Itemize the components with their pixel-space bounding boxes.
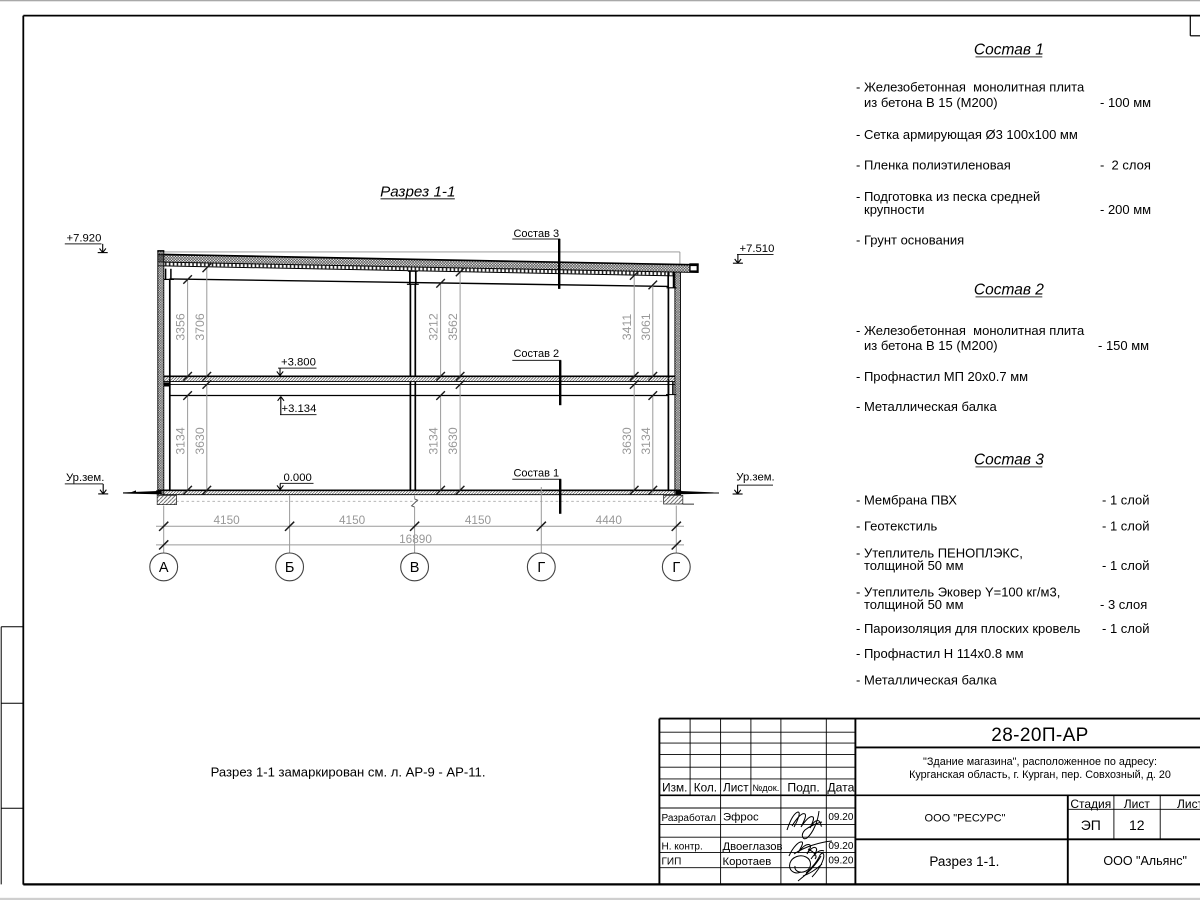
svg-text:28-20П-АР: 28-20П-АР xyxy=(991,725,1089,746)
svg-text:4150: 4150 xyxy=(339,513,366,527)
svg-text:Ур.зем.: Ур.зем. xyxy=(736,472,774,484)
svg-text:3630: 3630 xyxy=(193,427,207,455)
svg-text:12: 12 xyxy=(1129,817,1145,833)
svg-text:В: В xyxy=(410,560,420,576)
svg-text:- Металлическая балка: - Металлическая балка xyxy=(856,399,997,414)
svg-text:Состав 2: Состав 2 xyxy=(513,348,559,360)
svg-text:- Профнастил Н 114х0.8 мм: - Профнастил Н 114х0.8 мм xyxy=(856,646,1024,661)
svg-text:А: А xyxy=(159,560,169,576)
svg-text:Состав 1: Состав 1 xyxy=(513,468,559,480)
svg-text:Г: Г xyxy=(672,560,680,576)
svg-text:- Грунт основания: - Грунт основания xyxy=(856,232,964,247)
svg-text:- 1 слой: - 1 слой xyxy=(1102,519,1150,534)
svg-text:крупности: крупности xyxy=(864,202,924,217)
svg-text:Лист: Лист xyxy=(723,780,749,794)
svg-text:Состав 3: Состав 3 xyxy=(513,228,559,240)
svg-text:Подп.: Подп. xyxy=(787,780,819,794)
svg-text:Курганская область, г. Курган,: Курганская область, г. Курган, пер. Совх… xyxy=(909,769,1171,781)
svg-text:3630: 3630 xyxy=(446,427,460,455)
svg-text:+7.510: +7.510 xyxy=(740,243,775,255)
svg-text:- Мембрана ПВХ: - Мембрана ПВХ xyxy=(856,493,957,508)
svg-text:Кол.: Кол. xyxy=(694,780,717,794)
svg-text:Разрез 1-1: Разрез 1-1 xyxy=(380,183,455,200)
svg-text:Дата: Дата xyxy=(827,780,854,794)
svg-text:- Профнастил МП 20х0.7 мм: - Профнастил МП 20х0.7 мм xyxy=(856,369,1028,384)
svg-text:Ур.зем.: Ур.зем. xyxy=(66,472,104,484)
svg-text:ООО "РЕСУРС": ООО "РЕСУРС" xyxy=(925,813,1006,825)
svg-text:Состав 2: Состав 2 xyxy=(974,282,1044,299)
svg-text:Листов: Листов xyxy=(1177,797,1200,811)
svg-text:толщиной 50 мм: толщиной 50 мм xyxy=(864,597,964,612)
svg-text:- 1 слой: - 1 слой xyxy=(1102,493,1150,508)
svg-text:- 3 слоя: - 3 слоя xyxy=(1100,597,1147,612)
svg-text:Стадия: Стадия xyxy=(1070,797,1111,811)
svg-text:- 150 мм: - 150 мм xyxy=(1098,338,1149,353)
svg-text:ООО "Альянс": ООО "Альянс" xyxy=(1103,854,1187,868)
svg-text:3134: 3134 xyxy=(427,427,441,455)
svg-text:Разрез 1-1.: Разрез 1-1. xyxy=(929,854,999,869)
svg-text:№док.: №док. xyxy=(752,783,779,793)
svg-text:3134: 3134 xyxy=(174,427,188,455)
svg-text:3134: 3134 xyxy=(639,427,653,455)
svg-text:ЭП: ЭП xyxy=(1081,817,1101,833)
svg-text:3212: 3212 xyxy=(427,313,441,341)
svg-text:4150: 4150 xyxy=(213,513,240,527)
svg-text:толщиной 50 мм: толщиной 50 мм xyxy=(864,558,964,573)
svg-text:3630: 3630 xyxy=(620,427,634,455)
svg-text:- Пленка полиэтиленовая: - Пленка полиэтиленовая xyxy=(856,158,1011,173)
svg-text:Изм.: Изм. xyxy=(662,780,687,794)
svg-text:- Железобетонная монолитная п: - Железобетонная монолитная плита xyxy=(856,323,1085,338)
svg-text:+7.920: +7.920 xyxy=(67,232,102,244)
svg-text:3706: 3706 xyxy=(193,313,207,341)
svg-text:- Пароизоляция для плоских кро: - Пароизоляция для плоских кровель xyxy=(856,621,1081,636)
svg-text:+3.800: +3.800 xyxy=(281,357,316,369)
svg-text:Разрез 1-1 замаркирован см. л.: Разрез 1-1 замаркирован см. л. АР-9 - АР… xyxy=(211,764,486,779)
svg-text:Н. контр.: Н. контр. xyxy=(662,842,703,853)
svg-text:09.20: 09.20 xyxy=(828,841,853,852)
svg-text:- Металлическая балка: - Металлическая балка xyxy=(856,673,997,688)
svg-text:16890: 16890 xyxy=(399,532,432,546)
svg-text:- Геотекстиль: - Геотекстиль xyxy=(856,519,937,534)
svg-text:3061: 3061 xyxy=(639,313,653,341)
svg-text:- 2 слоя: - 2 слоя xyxy=(1100,158,1151,173)
svg-text:- Сетка армирующая Ø3 100х100: - Сетка армирующая Ø3 100х100 мм xyxy=(856,127,1078,142)
svg-text:- 200 мм: - 200 мм xyxy=(1100,202,1151,217)
svg-text:- 1 слой: - 1 слой xyxy=(1102,621,1150,636)
svg-text:3562: 3562 xyxy=(446,313,460,341)
svg-text:+3.134: +3.134 xyxy=(282,403,317,415)
svg-text:Эфрос: Эфрос xyxy=(723,811,759,823)
svg-text:0.000: 0.000 xyxy=(284,472,312,484)
svg-text:- 100 мм: - 100 мм xyxy=(1100,95,1151,110)
svg-text:Состав 3: Состав 3 xyxy=(974,452,1044,469)
svg-text:Коротаев: Коротаев xyxy=(723,856,772,868)
svg-text:Б: Б xyxy=(285,560,295,576)
svg-text:Двоеглазов: Двоеглазов xyxy=(723,841,783,853)
svg-text:"Здание магазина", расположенн: "Здание магазина", расположенное по адре… xyxy=(923,756,1157,768)
svg-text:3356: 3356 xyxy=(174,313,188,341)
svg-text:- 1 слой: - 1 слой xyxy=(1102,558,1150,573)
svg-text:09.20: 09.20 xyxy=(828,812,853,823)
svg-text:3411: 3411 xyxy=(620,314,634,341)
svg-text:4440: 4440 xyxy=(596,513,623,527)
svg-text:ГИП: ГИП xyxy=(662,856,682,867)
svg-text:из бетона В 15 (М200): из бетона В 15 (М200) xyxy=(864,95,998,110)
svg-text:4150: 4150 xyxy=(465,513,492,527)
svg-text:Г: Г xyxy=(537,560,545,576)
svg-text:Разработал: Разработал xyxy=(662,812,717,824)
svg-text:- Железобетонная монолитная п: - Железобетонная монолитная плита xyxy=(856,80,1085,95)
svg-text:Лист: Лист xyxy=(1124,797,1151,811)
svg-text:09.20: 09.20 xyxy=(828,855,853,866)
svg-text:Состав 1: Состав 1 xyxy=(974,42,1044,59)
svg-text:из бетона В 15 (М200): из бетона В 15 (М200) xyxy=(864,338,998,353)
